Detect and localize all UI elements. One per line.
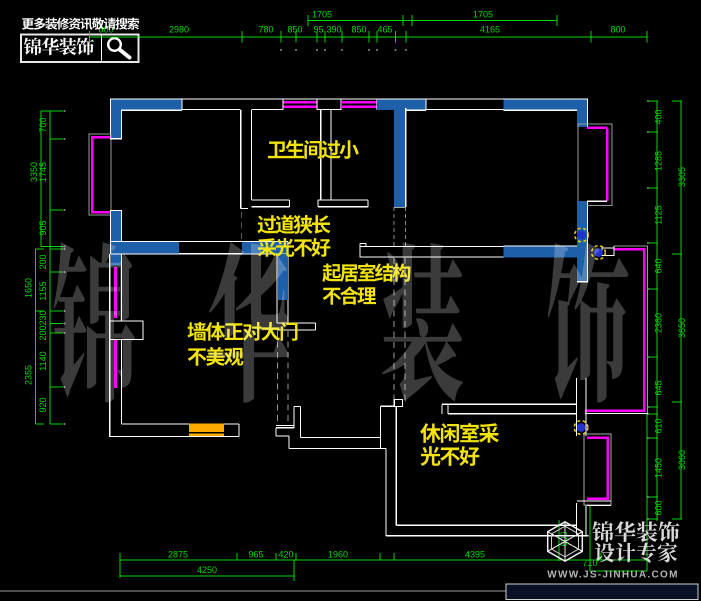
svg-text:780: 780 (258, 25, 273, 35)
svg-text:4165: 4165 (480, 25, 500, 35)
svg-text:640: 640 (654, 258, 664, 273)
svg-text:850: 850 (287, 25, 302, 35)
svg-text:1650: 1650 (24, 278, 34, 298)
svg-text:1155: 1155 (38, 281, 48, 300)
svg-text:230: 230 (38, 310, 48, 325)
svg-text:920: 920 (38, 397, 48, 412)
svg-text:200: 200 (38, 254, 48, 269)
svg-text:1960: 1960 (328, 550, 348, 560)
svg-text:4250: 4250 (197, 565, 217, 575)
svg-text:1705: 1705 (473, 10, 493, 20)
svg-text:200: 200 (38, 325, 48, 340)
svg-text:WWW.JS-JINHUA.COM: WWW.JS-JINHUA.COM (547, 570, 679, 581)
svg-text:645: 645 (654, 380, 664, 395)
svg-text:390: 390 (326, 25, 341, 35)
svg-text:905: 905 (38, 220, 48, 235)
svg-text:1705: 1705 (312, 10, 332, 20)
svg-text:1140: 1140 (38, 351, 48, 370)
svg-text:700: 700 (38, 117, 48, 132)
svg-text:4395: 4395 (465, 550, 485, 560)
svg-text:400: 400 (654, 109, 664, 124)
svg-text:3350: 3350 (29, 162, 39, 182)
svg-text:3305: 3305 (677, 167, 687, 187)
svg-text:800: 800 (610, 25, 625, 35)
svg-text:965: 965 (248, 550, 263, 560)
svg-text:2355: 2355 (24, 365, 34, 385)
svg-text:1285: 1285 (654, 151, 664, 171)
svg-text:600: 600 (654, 500, 664, 515)
svg-text:850: 850 (351, 25, 366, 35)
svg-text:2875: 2875 (168, 550, 188, 560)
svg-text:3060: 3060 (677, 450, 687, 470)
svg-text:1125: 1125 (654, 205, 664, 224)
svg-text:95: 95 (313, 25, 323, 35)
svg-text:1745: 1745 (38, 162, 48, 182)
svg-text:420: 420 (278, 550, 293, 560)
svg-text:2360: 2360 (654, 313, 664, 333)
svg-text:3650: 3650 (677, 318, 687, 338)
svg-text:1450: 1450 (654, 458, 664, 478)
svg-text:465: 465 (377, 25, 392, 35)
svg-text:2980: 2980 (169, 25, 189, 35)
svg-text:610: 610 (654, 418, 664, 433)
